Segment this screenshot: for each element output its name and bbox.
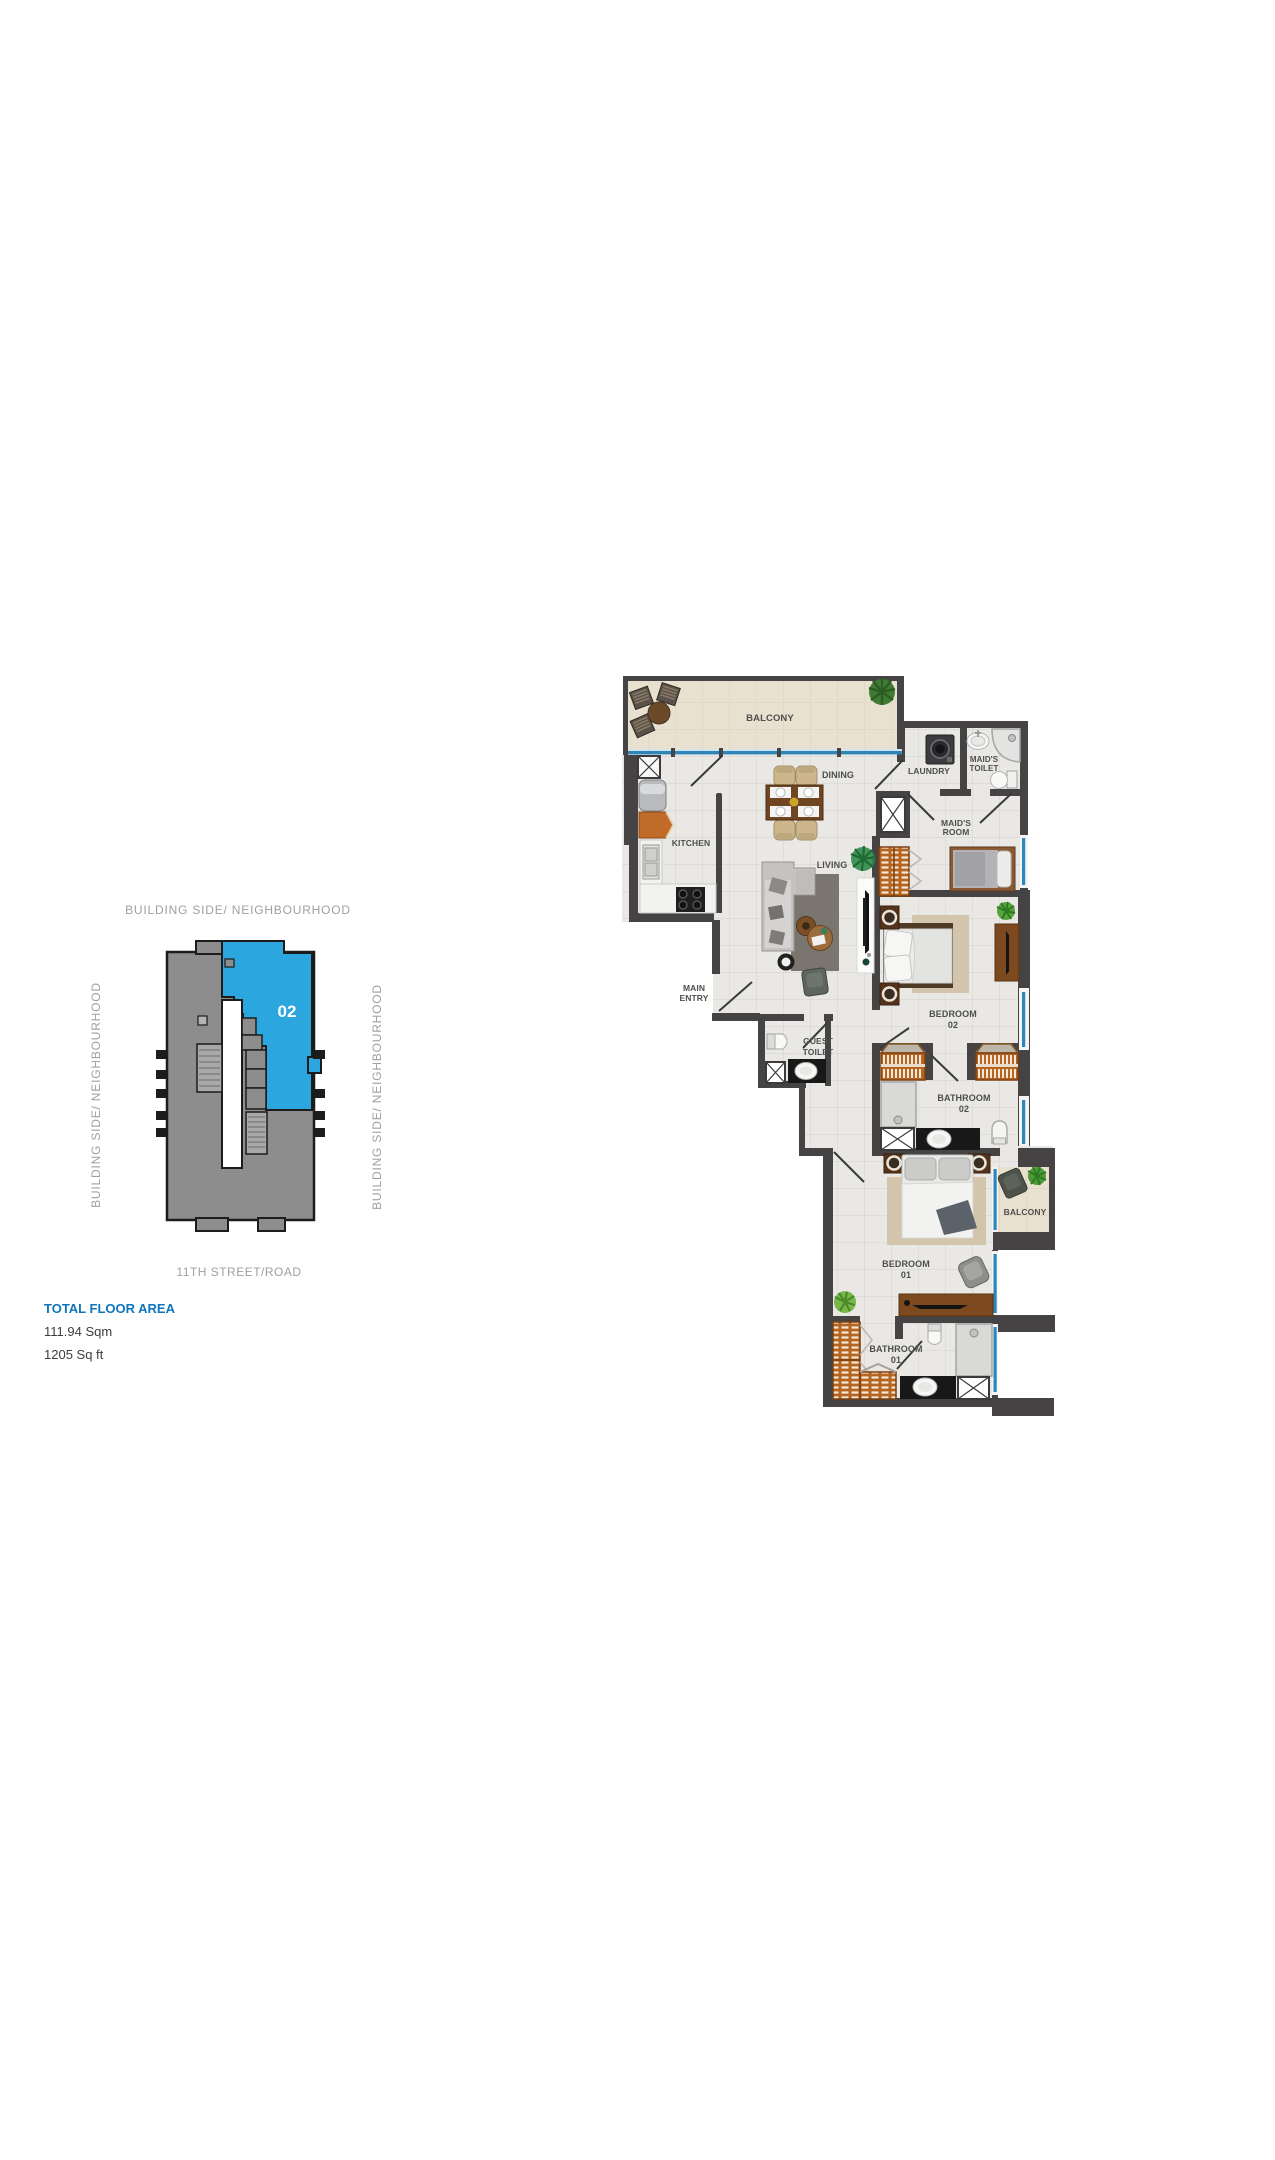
svg-text:BATHROOM: BATHROOM — [869, 1344, 922, 1354]
svg-text:MAID'S: MAID'S — [970, 755, 999, 764]
svg-text:ROOM: ROOM — [943, 827, 970, 837]
svg-text:01: 01 — [891, 1355, 901, 1365]
svg-text:BALCONY: BALCONY — [1004, 1207, 1047, 1217]
svg-text:GUEST: GUEST — [803, 1036, 833, 1046]
svg-text:1205 Sq ft: 1205 Sq ft — [44, 1347, 104, 1362]
svg-text:DINING: DINING — [822, 770, 854, 780]
svg-text:111.94 Sqm: 111.94 Sqm — [44, 1324, 112, 1339]
svg-text:KITCHEN: KITCHEN — [672, 838, 710, 848]
svg-text:BEDROOM: BEDROOM — [929, 1009, 977, 1019]
svg-text:BATHROOM: BATHROOM — [937, 1093, 990, 1103]
svg-text:LIVING: LIVING — [817, 860, 848, 870]
svg-text:MAIN: MAIN — [683, 983, 705, 993]
svg-text:ENTRY: ENTRY — [680, 993, 709, 1003]
svg-text:BEDROOM: BEDROOM — [882, 1259, 930, 1269]
svg-text:11TH STREET/ROAD: 11TH STREET/ROAD — [176, 1265, 301, 1279]
svg-text:BALCONY: BALCONY — [746, 713, 794, 724]
svg-text:02: 02 — [278, 1002, 297, 1021]
svg-text:BUILDING SIDE/ NEIGHBOURHOOD: BUILDING SIDE/ NEIGHBOURHOOD — [89, 982, 103, 1208]
svg-text:02: 02 — [959, 1104, 969, 1114]
svg-text:BUILDING SIDE/ NEIGHBOURHOOD: BUILDING SIDE/ NEIGHBOURHOOD — [370, 984, 384, 1210]
svg-text:BUILDING SIDE/ NEIGHBOURHOOD: BUILDING SIDE/ NEIGHBOURHOOD — [125, 903, 351, 917]
svg-text:LAUNDRY: LAUNDRY — [908, 766, 950, 776]
svg-text:02: 02 — [948, 1020, 958, 1030]
svg-text:TOTAL FLOOR AREA: TOTAL FLOOR AREA — [44, 1301, 176, 1316]
svg-text:TOILET: TOILET — [803, 1047, 834, 1057]
svg-text:TOILET: TOILET — [970, 764, 999, 773]
svg-text:01: 01 — [901, 1270, 911, 1280]
